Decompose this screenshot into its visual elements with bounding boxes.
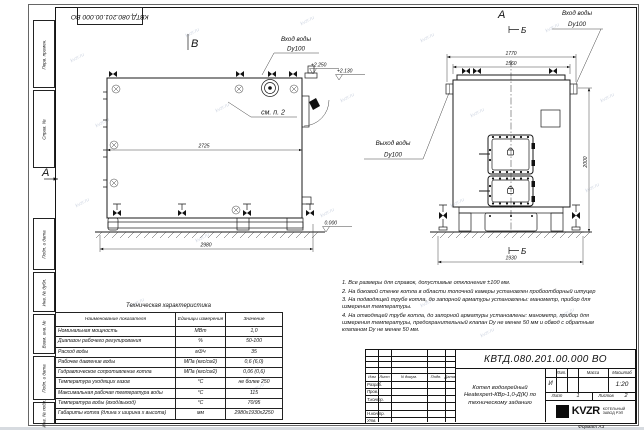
table-cell: МПа (кгс/см2) <box>176 357 226 367</box>
drain-valve-icons <box>113 210 314 216</box>
table-cell: м3/ч <box>176 347 226 357</box>
row-utv: Утв. <box>367 417 391 424</box>
sheet-label: Лист <box>546 392 568 400</box>
outlet-label: Выход воды <box>376 140 411 147</box>
inlet-label-front: Вход воды <box>562 10 592 17</box>
product-name-line: Heatexpert-КВр-1,0-Д(К) по <box>464 392 536 400</box>
table-cell: Расход воды <box>56 347 176 357</box>
top-valve-icons <box>109 71 297 77</box>
row-prov: Пров. <box>367 388 391 395</box>
dim-2725: 2725 <box>197 144 209 150</box>
dim-1930: 1930 <box>505 256 516 262</box>
product-name-line: техническому заданию <box>468 400 532 408</box>
table-header-cell: Значение <box>226 313 283 327</box>
tb-line <box>366 356 455 357</box>
table-cell: МПа (кгс/см2) <box>176 368 226 378</box>
title-doc-number: КВТД.080.201.00.000 ВО <box>455 350 636 368</box>
elev-0000: 0.000 <box>325 221 338 227</box>
table-cell: °С <box>176 399 226 409</box>
control-box <box>541 110 560 127</box>
logo-subtitle: КОТЕЛЬНЫЙ ЗАВОД РЭП <box>603 407 626 416</box>
sheets-value: 2 <box>619 392 633 400</box>
view-a-label: А <box>497 9 505 21</box>
outlet-size: Dy100 <box>384 152 402 159</box>
tb-line <box>366 361 455 362</box>
note-4: 4. На отводящей трубе котла, до запорной… <box>342 313 610 334</box>
dim-1770: 1770 <box>505 51 516 57</box>
table-row: Гидравлическое сопротивление котлаМПа (к… <box>56 368 283 378</box>
elevation-flag-0000 <box>323 227 353 233</box>
table-cell: 70/95 <box>226 399 283 409</box>
lit-label: Лит. <box>545 369 578 377</box>
table-header-row: Наименование показателя Единицы измерени… <box>56 313 283 327</box>
col-list: Лист <box>378 373 391 381</box>
elev-2130: +2.130 <box>337 69 353 75</box>
logo-subtitle-line: ЗАВОД РЭП <box>603 411 626 415</box>
tech-table-title: Техническая характеристика <box>55 301 282 312</box>
notes-block: 1. Все размеры для справок, допустимые о… <box>342 280 610 336</box>
col-izm: Изм <box>366 373 378 381</box>
col-docum: N докум. <box>391 373 427 381</box>
dim-2980: 2980 <box>199 243 211 249</box>
product-name: Котел водогрейный Heatexpert-КВр-1,0-Д(К… <box>455 369 545 423</box>
front-door-profile <box>302 66 329 204</box>
dim-2000: 2000 <box>583 156 589 168</box>
scale-label: Масштаб <box>608 369 636 377</box>
table-cell: 35 <box>226 347 283 357</box>
section-b-mark-bottom <box>509 247 519 254</box>
inlet-size-front: Dy100 <box>568 21 586 28</box>
table-cell: Номинальная мощность <box>56 327 176 337</box>
lit-value: И <box>545 377 556 391</box>
section-b-label-top: Б <box>521 26 526 35</box>
table-row: Диапазон рабочего регулирования%50-100 <box>56 337 283 347</box>
mass-label: Масса <box>578 369 608 377</box>
base-skid <box>108 218 303 230</box>
note-2: 2. На боковой стенке котла в области топ… <box>342 289 610 296</box>
col-podp: Подп. <box>427 373 445 381</box>
section-b-label-bottom: Б <box>521 247 526 256</box>
outer-valves <box>439 205 580 230</box>
tech-table: Техническая характеристика Наименование … <box>55 301 282 420</box>
row-nkontr: Н.контр. <box>367 410 391 417</box>
table-cell: мм <box>176 409 226 419</box>
sheets-label: Листов <box>593 392 619 400</box>
inlet-flange-icon <box>262 80 279 97</box>
table-cell: 0,6 (6,0) <box>226 357 283 367</box>
table-cell: 0,06 (0,6) <box>226 368 283 378</box>
table-cell: Габариты котла (длина х ширина х высота) <box>56 409 176 419</box>
row-tkontr: Т.контр. <box>367 396 391 403</box>
table-header-cell: Наименование показателя <box>56 313 176 327</box>
view-a-arrow: А <box>41 167 58 179</box>
drawing-sheet: kvzr.rukvzr.rukvzr.rukvzr.rukvzr.rukvzr.… <box>0 0 644 430</box>
tech-table-grid: Наименование показателя Единицы измерени… <box>55 312 283 420</box>
table-cell: Температура уходящих газов <box>56 378 176 388</box>
table-row: Габариты котла (длина х ширина х высота)… <box>56 409 283 419</box>
table-cell: не более 250 <box>226 378 283 388</box>
table-row: Максимальная рабочая температура воды°С1… <box>56 388 283 398</box>
table-cell: Максимальная рабочая температура воды <box>56 388 176 398</box>
row-razrab: Разраб. <box>367 381 391 388</box>
inlet-leader-front <box>552 29 603 84</box>
logo-text: KVZR <box>572 405 600 417</box>
drain-valve-stems <box>113 204 314 210</box>
scale-value: 1:20 <box>608 377 636 391</box>
note-ref: см. п. 2 <box>261 110 285 117</box>
table-cell: 1,0 <box>226 327 283 337</box>
side-flanges <box>446 84 577 94</box>
table-cell: °С <box>176 388 226 398</box>
boiler-body-front <box>453 80 570 207</box>
table-cell: Рабочее давление воды <box>56 357 176 367</box>
front-view: 1770 1560 2000 1930 Б Б А Вход воды Dy10… <box>364 9 603 265</box>
table-cell: % <box>176 337 226 347</box>
company-logo: KVZR КОТЕЛЬНЫЙ ЗАВОД РЭП <box>545 400 636 422</box>
lifting-lug-icons <box>110 85 298 214</box>
table-cell: 2980х1930х2250 <box>226 409 283 419</box>
sheet-value: 1 <box>568 392 588 400</box>
note-1: 1. Все размеры для справок, допустимые о… <box>342 280 610 287</box>
inlet-size-side: Dy100 <box>287 46 305 53</box>
tb-line <box>366 367 455 368</box>
side-view: 2725 2980 +2.250 +2.130 0.000 Вход воды … <box>95 34 365 252</box>
outlet-leader <box>364 93 449 159</box>
top-valve-icons-front <box>462 68 557 74</box>
inlet-label-side: Вход воды <box>281 36 311 43</box>
note-3: 3. На подводящей трубе котла, до запорно… <box>342 297 610 311</box>
table-row: Расход водым3/ч35 <box>56 347 283 357</box>
elev-2250: +2.250 <box>311 63 327 69</box>
table-row: Номинальная мощностьМВт1,0 <box>56 327 283 337</box>
table-cell: МВт <box>176 327 226 337</box>
format-note: Формат А3 <box>578 425 604 430</box>
table-cell: 115 <box>226 388 283 398</box>
table-cell: Температура воды (вход/выход) <box>56 399 176 409</box>
upper-door <box>479 135 535 174</box>
dim-1560: 1560 <box>505 61 516 67</box>
table-row: Рабочее давление водыМПа (кгс/см2)0,6 (6… <box>56 357 283 367</box>
logo-mark-icon <box>556 405 569 418</box>
ground-hatch <box>96 232 318 238</box>
table-cell: 50-100 <box>226 337 283 347</box>
table-row: Температура воды (вход/выход)°С70/95 <box>56 399 283 409</box>
elevation-flag-2130 <box>336 75 366 81</box>
dim-ext-1770 <box>447 54 576 82</box>
table-cell: Гидравлическое сопротивление котла <box>56 368 176 378</box>
lower-door <box>479 176 535 206</box>
section-b-mark-top <box>509 26 519 33</box>
table-cell: °С <box>176 378 226 388</box>
view-a-arrow-label: А <box>41 167 49 179</box>
table-header-cell: Единицы измерения <box>176 313 226 327</box>
view-b-label: В <box>191 38 198 50</box>
col-data: Дата <box>445 373 455 381</box>
table-cell: Диапазон рабочего регулирования <box>56 337 176 347</box>
rear-lugs <box>103 92 107 187</box>
product-name-line: Котел водогрейный <box>472 385 527 393</box>
title-block: КВТД.080.201.00.000 ВО Котел водогрейный… <box>365 349 636 424</box>
table-row: Температура уходящих газов°Сне более 250 <box>56 378 283 388</box>
